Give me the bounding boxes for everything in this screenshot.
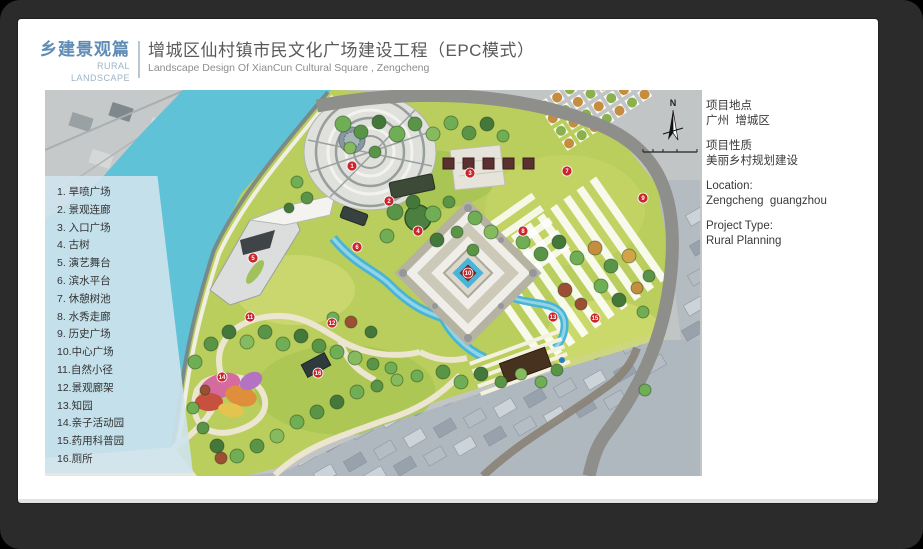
legend-item: 16.厕所 xyxy=(57,451,193,469)
location-value-en: Zengcheng guangzhou xyxy=(706,194,866,209)
legend-item: 9. 历史广场 xyxy=(57,326,193,344)
type-value-cn: 美丽乡村规划建设 xyxy=(706,154,866,169)
entrance-plaza xyxy=(450,145,505,190)
marker-number: 16 xyxy=(315,371,322,377)
type-label-en: Project Type: xyxy=(706,219,866,234)
site-plan-map: N 12345678910111213141516 1. 旱喷广场2. 景观连廊… xyxy=(45,90,702,476)
project-title-block: 增城区仙村镇市民文化广场建设工程（EPC模式） Landscape Design… xyxy=(148,40,534,75)
legend-item: 10.中心广场 xyxy=(57,344,193,362)
section-title-cn: 乡建景观篇 xyxy=(38,40,130,60)
location-label-cn: 项目地点 xyxy=(706,99,866,114)
info-panel: 项目地点 广州 增城区 项目性质 美丽乡村规划建设 Location: Zeng… xyxy=(706,99,866,248)
project-title-en: Landscape Design Of XianCun Cultural Squ… xyxy=(148,62,534,75)
marker-number: 10 xyxy=(465,271,472,277)
presentation-slide: 乡建景观篇 RURAL LANDSCAPE 增城区仙村镇市民文化广场建设工程（E… xyxy=(18,19,878,503)
legend-item: 12.景观廊架 xyxy=(57,380,193,398)
svg-text:N: N xyxy=(670,98,677,108)
marker-number: 13 xyxy=(550,315,557,321)
marker-number: 15 xyxy=(592,316,599,322)
section-title-block: 乡建景观篇 RURAL LANDSCAPE xyxy=(38,40,130,84)
type-value-en: Rural Planning xyxy=(706,234,866,249)
location-label-en: Location: xyxy=(706,179,866,194)
legend-item: 13.知园 xyxy=(57,398,193,416)
slide-header: 乡建景观篇 RURAL LANDSCAPE 增城区仙村镇市民文化广场建设工程（E… xyxy=(38,40,534,84)
section-title-en: RURAL LANDSCAPE xyxy=(38,60,130,84)
legend-item: 15.药用科普园 xyxy=(57,433,193,451)
legend-item: 11.自然小径 xyxy=(57,362,193,380)
legend-item: 14.亲子活动园 xyxy=(57,415,193,433)
project-title-cn: 增城区仙村镇市民文化广场建设工程（EPC模式） xyxy=(148,40,534,62)
location-value-cn: 广州 增城区 xyxy=(706,114,866,129)
screenshot-root: { "header": { "section_title_cn": "乡建景观篇… xyxy=(0,0,923,549)
marker-number: 14 xyxy=(219,375,226,381)
type-label-cn: 项目性质 xyxy=(706,139,866,154)
marker-number: 11 xyxy=(247,315,254,321)
header-divider xyxy=(138,41,140,78)
legend-item: 8. 水秀走廊 xyxy=(57,309,193,327)
marker-number: 12 xyxy=(329,321,336,327)
